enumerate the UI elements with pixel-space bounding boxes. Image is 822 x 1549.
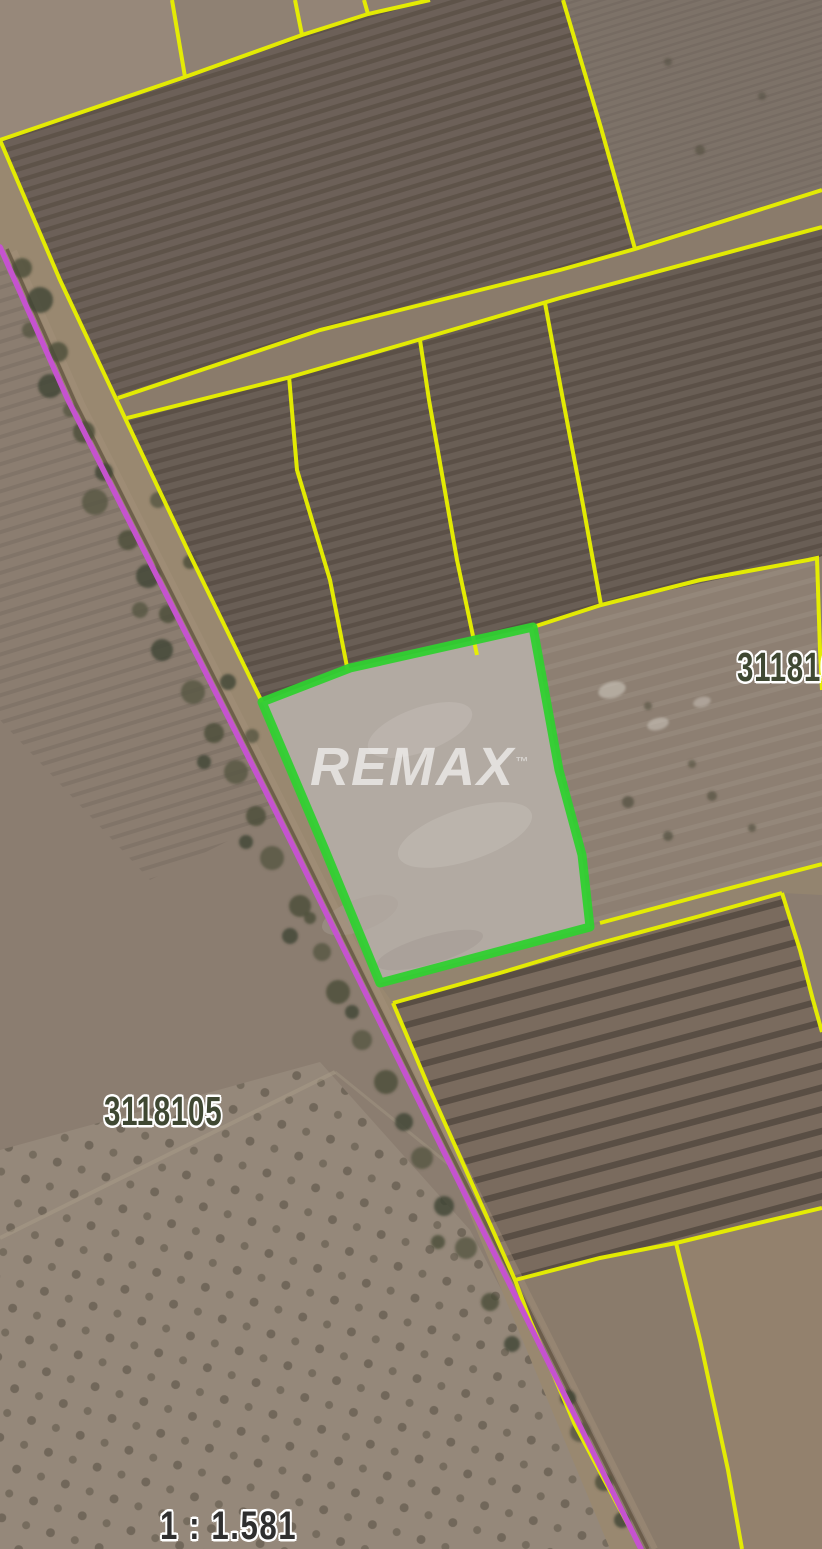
tree-marker — [151, 639, 173, 661]
tree-marker — [455, 1237, 477, 1259]
tree-marker — [395, 1113, 413, 1131]
tree-marker — [82, 489, 108, 515]
tree-marker — [245, 729, 259, 743]
map-scale-label: 1 : 1.581 — [160, 1506, 297, 1546]
tree-marker — [374, 1070, 398, 1094]
watermark-remax: REMAX™ — [310, 740, 530, 794]
tree-marker — [224, 760, 248, 784]
tree-marker — [181, 680, 205, 704]
tree-marker — [304, 912, 316, 924]
tree-marker — [132, 602, 148, 618]
parcel-number-label-right: 311810 — [737, 647, 822, 688]
tree-marker — [345, 1005, 359, 1019]
tree-marker — [352, 1030, 372, 1050]
watermark-text: REMAX — [310, 737, 515, 797]
tree-marker — [246, 806, 266, 826]
tree-marker — [220, 674, 236, 690]
tree-marker — [239, 835, 253, 849]
tree-marker — [197, 755, 211, 769]
watermark-tm: ™ — [515, 754, 530, 769]
tree-marker — [481, 1293, 499, 1311]
tree-marker — [282, 928, 298, 944]
tree-marker — [27, 287, 53, 313]
tree-marker — [313, 943, 331, 961]
tree-marker — [204, 723, 224, 743]
tree-marker — [411, 1147, 433, 1169]
tree-marker — [504, 1336, 520, 1352]
tree-marker — [434, 1196, 454, 1216]
parcel-number-label-left: 3118105 — [104, 1091, 222, 1132]
tree-marker — [326, 980, 350, 1004]
map-viewport[interactable]: REMAX™ 3118105 311810 1 : 1.581 — [0, 0, 822, 1549]
tree-marker — [260, 846, 284, 870]
tree-marker — [431, 1235, 445, 1249]
